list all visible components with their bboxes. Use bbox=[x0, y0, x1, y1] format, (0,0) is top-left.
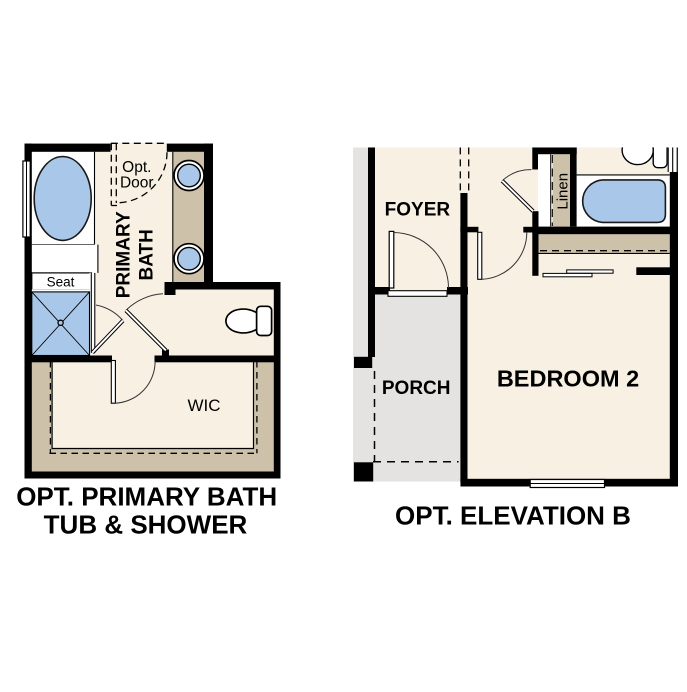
svg-text:BEDROOM 2: BEDROOM 2 bbox=[497, 365, 639, 391]
svg-text:OPT. ELEVATION B: OPT. ELEVATION B bbox=[395, 501, 631, 531]
svg-text:WIC: WIC bbox=[187, 396, 220, 415]
svg-text:PORCH: PORCH bbox=[382, 378, 451, 399]
svg-text:Door: Door bbox=[120, 175, 154, 192]
svg-text:Seat: Seat bbox=[47, 274, 75, 289]
svg-text:Linen: Linen bbox=[555, 173, 572, 210]
svg-text:PRIMARY: PRIMARY bbox=[113, 211, 134, 298]
svg-text:FOYER: FOYER bbox=[385, 199, 451, 220]
svg-text:TUB & SHOWER: TUB & SHOWER bbox=[44, 510, 248, 540]
svg-text:Opt.: Opt. bbox=[122, 159, 151, 176]
svg-text:OPT. PRIMARY BATH: OPT. PRIMARY BATH bbox=[16, 482, 277, 512]
svg-text:BATH: BATH bbox=[136, 229, 157, 280]
